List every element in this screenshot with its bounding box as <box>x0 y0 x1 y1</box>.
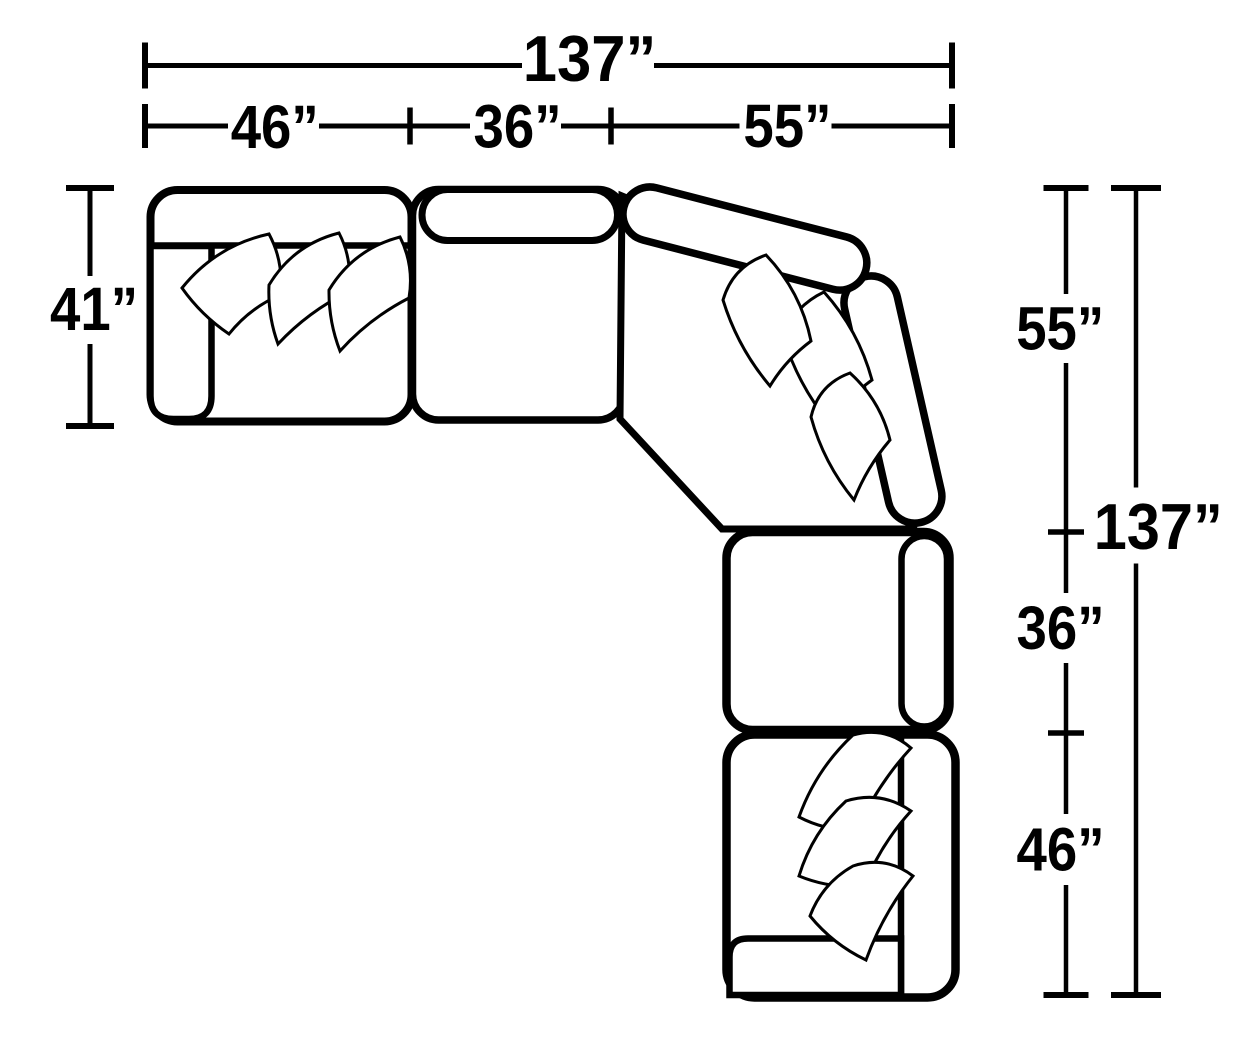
svg-text:46”: 46” <box>231 93 319 161</box>
svg-text:36”: 36” <box>474 93 562 161</box>
svg-text:46”: 46” <box>1017 815 1105 883</box>
svg-text:137”: 137” <box>1094 490 1223 563</box>
svg-text:36”: 36” <box>1017 594 1105 662</box>
svg-text:41”: 41” <box>50 275 138 343</box>
svg-text:137”: 137” <box>523 22 657 95</box>
svg-text:55”: 55” <box>1016 294 1104 362</box>
svg-text:55”: 55” <box>743 92 831 160</box>
